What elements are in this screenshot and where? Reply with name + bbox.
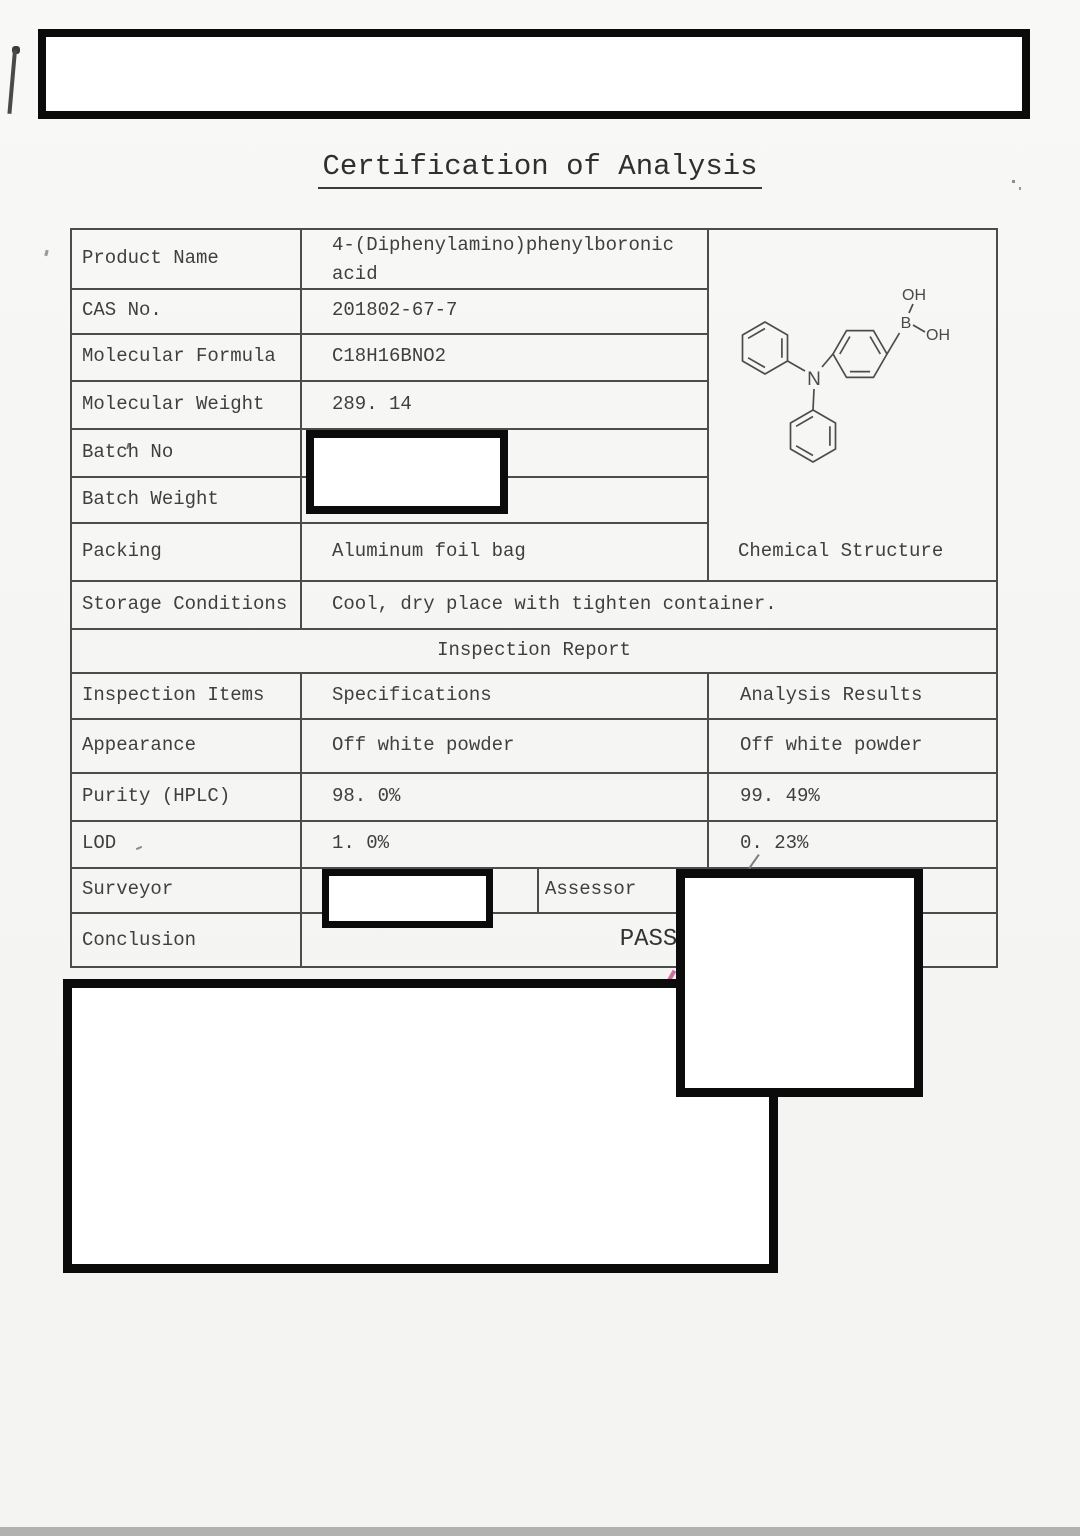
pen-mark-line xyxy=(7,50,17,114)
product-name-value: 4-(Diphenylamino)phenylboronic acid xyxy=(332,231,702,289)
redaction-box-stamp xyxy=(676,869,923,1097)
appearance-spec: Off white powder xyxy=(332,732,514,758)
grid-line xyxy=(300,672,302,968)
benzene-ring-left xyxy=(743,322,788,374)
grid-line xyxy=(70,228,72,968)
product-name-label: Product Name xyxy=(82,245,219,271)
mol-weight-value: 289. 14 xyxy=(332,391,412,417)
cas-value: 201802-67-7 xyxy=(332,297,457,323)
certificate-page: Certification of Analysis Product Name C… xyxy=(0,0,1080,1536)
formula-label: Molecular Formula xyxy=(82,343,276,369)
specifications-header: Specifications xyxy=(332,682,492,708)
conclusion-label: Conclusion xyxy=(82,927,196,953)
lod-spec: 1. 0% xyxy=(332,830,389,856)
grid-line xyxy=(70,820,998,822)
grid-line xyxy=(70,672,998,674)
redaction-box-bottom xyxy=(63,979,778,1273)
mol-weight-label: Molecular Weight xyxy=(82,391,264,417)
lod-result: 0. 23% xyxy=(740,830,808,856)
speck xyxy=(136,846,142,850)
grid-line xyxy=(70,580,998,582)
inspection-items-header: Inspection Items xyxy=(82,682,264,708)
grid-line xyxy=(70,333,709,335)
assessor-label: Assessor xyxy=(545,876,636,902)
appearance-label: Appearance xyxy=(82,732,196,758)
speck xyxy=(44,250,48,257)
purity-label: Purity (HPLC) xyxy=(82,783,230,809)
storage-value: Cool, dry place with tighten container. xyxy=(332,591,777,617)
grid-line xyxy=(70,522,709,524)
benzene-ring-bottom xyxy=(791,410,836,462)
benzene-ring-center xyxy=(833,331,887,378)
cas-label: CAS No. xyxy=(82,297,162,323)
packing-label: Packing xyxy=(82,538,162,564)
redaction-box-batch xyxy=(306,430,508,514)
inspection-report-title: Inspection Report xyxy=(70,637,998,663)
atom-oh-right: OH xyxy=(926,327,950,344)
surveyor-label: Surveyor xyxy=(82,876,173,902)
redaction-box-header xyxy=(38,29,1030,119)
grid-line xyxy=(70,628,998,630)
grid-line xyxy=(70,718,998,720)
formula-value: C18H16BNO2 xyxy=(332,343,446,369)
atom-b: B xyxy=(901,315,912,332)
chemical-structure-drawing: N B OH OH xyxy=(707,228,997,580)
scan-edge-bar xyxy=(0,1527,1080,1536)
grid-line xyxy=(70,380,709,382)
batch-weight-label: Batch Weight xyxy=(82,486,219,512)
grid-line xyxy=(300,228,302,628)
lod-label: LOD xyxy=(82,830,116,856)
appearance-result: Off white powder xyxy=(740,732,922,758)
purity-spec: 98. 0% xyxy=(332,783,400,809)
grid-line xyxy=(537,867,539,912)
purity-result: 99. 49% xyxy=(740,783,820,809)
atom-n: N xyxy=(807,369,821,390)
grid-line xyxy=(70,288,709,290)
redaction-box-surveyor xyxy=(322,869,493,928)
packing-value: Aluminum foil bag xyxy=(332,538,526,564)
analysis-results-header: Analysis Results xyxy=(740,682,922,708)
page-title: Certification of Analysis xyxy=(0,150,1080,189)
grid-line xyxy=(70,772,998,774)
atom-oh-top: OH xyxy=(902,287,926,304)
storage-label: Storage Conditions xyxy=(82,591,287,617)
